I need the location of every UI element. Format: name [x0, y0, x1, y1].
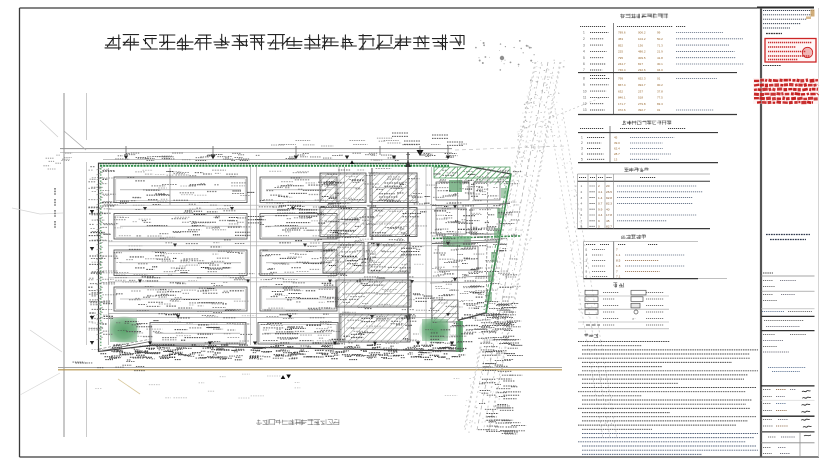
svg-text:00.2: 00.2	[657, 83, 663, 87]
svg-text:006.2: 006.2	[638, 31, 646, 35]
svg-text:71.3: 71.3	[657, 43, 663, 47]
svg-text:104.2: 104.2	[638, 37, 646, 41]
svg-text:867.4: 867.4	[618, 83, 626, 87]
svg-text:789.6: 789.6	[618, 31, 626, 35]
svg-text:8: 8	[583, 77, 585, 81]
svg-text:846.1: 846.1	[618, 96, 626, 100]
svg-text:4: 4	[586, 264, 588, 268]
svg-text:82.7: 82.7	[606, 225, 612, 229]
svg-text:4: 4	[581, 202, 583, 206]
svg-text:10: 10	[583, 89, 587, 93]
svg-text:×·: ×·	[632, 316, 636, 321]
svg-text:20: 20	[606, 184, 610, 188]
svg-text:795: 795	[618, 56, 623, 60]
svg-text:8.5: 8.5	[616, 259, 621, 263]
svg-text:652.3: 652.3	[638, 77, 646, 81]
svg-text:3: 3	[586, 259, 588, 263]
svg-text:28.7: 28.7	[614, 152, 620, 156]
svg-text:817: 817	[638, 62, 643, 66]
svg-text:3: 3	[581, 147, 583, 151]
svg-text:82.3: 82.3	[606, 202, 612, 206]
svg-text:094.7: 094.7	[638, 83, 646, 87]
svg-text:9.9: 9.9	[598, 207, 603, 211]
svg-text:13: 13	[583, 108, 587, 112]
svg-text:41.8: 41.8	[657, 56, 663, 60]
svg-text:6: 6	[586, 275, 588, 279]
svg-text:4.4: 4.4	[598, 213, 603, 217]
svg-text:072.6: 072.6	[618, 108, 626, 112]
svg-text:232.6: 232.6	[638, 68, 646, 72]
svg-text:45: 45	[606, 219, 610, 223]
svg-text:2: 2	[583, 37, 585, 41]
svg-text:39.0: 39.0	[614, 141, 620, 145]
svg-text:1: 1	[583, 31, 585, 35]
svg-text:04.0: 04.0	[657, 68, 663, 72]
svg-text:244.7: 244.7	[618, 62, 626, 66]
svg-text:2: 2	[581, 190, 583, 194]
svg-text:3: 3	[581, 196, 583, 200]
svg-text:632: 632	[618, 89, 623, 93]
svg-text:4: 4	[583, 50, 585, 54]
svg-text:6: 6	[583, 62, 585, 66]
svg-text:746.4: 746.4	[618, 68, 626, 72]
svg-text:50.2: 50.2	[657, 37, 663, 41]
svg-text:7: 7	[616, 248, 618, 252]
svg-text:486.2: 486.2	[638, 50, 646, 54]
svg-text:1.8: 1.8	[616, 264, 621, 268]
svg-text:1.4: 1.4	[598, 196, 603, 200]
svg-text:309.5: 309.5	[638, 56, 646, 60]
svg-text:5: 5	[586, 270, 588, 274]
svg-text:21.9: 21.9	[657, 50, 663, 54]
svg-text:45: 45	[614, 136, 618, 140]
svg-text:26.5: 26.5	[606, 190, 612, 194]
svg-text:77.5: 77.5	[657, 96, 663, 100]
svg-text:7.1: 7.1	[616, 275, 621, 279]
svg-text:5: 5	[583, 56, 585, 60]
svg-text:7: 7	[581, 219, 583, 223]
svg-text:1: 1	[586, 248, 588, 252]
svg-text:1: 1	[581, 136, 583, 140]
svg-text:225: 225	[618, 50, 623, 54]
svg-text:518: 518	[638, 96, 643, 100]
svg-text:2: 2	[581, 141, 583, 145]
svg-text:12: 12	[583, 102, 587, 106]
svg-text:4: 4	[581, 152, 583, 156]
svg-text:279.8: 279.8	[638, 102, 646, 106]
svg-text:30.1: 30.1	[657, 62, 663, 66]
svg-text:1: 1	[581, 184, 583, 188]
svg-text:136: 136	[638, 43, 643, 47]
svg-text:01: 01	[657, 108, 661, 112]
svg-text:6: 6	[581, 213, 583, 217]
svg-text:17.8: 17.8	[606, 213, 612, 217]
svg-text:8: 8	[581, 225, 583, 229]
svg-text:37.8: 37.8	[657, 89, 663, 93]
svg-text:11: 11	[583, 96, 587, 100]
svg-text:5: 5	[581, 158, 583, 162]
svg-text:7: 7	[583, 68, 585, 72]
svg-text:392.7: 392.7	[638, 108, 646, 112]
svg-text:99: 99	[657, 31, 661, 35]
svg-text:01: 01	[657, 77, 661, 81]
svg-text:171.7: 171.7	[618, 102, 626, 106]
svg-text:7: 7	[616, 270, 618, 274]
svg-text:9: 9	[583, 83, 585, 87]
svg-text:0.7: 0.7	[598, 202, 603, 206]
svg-text:4.1: 4.1	[598, 190, 603, 194]
svg-text:2: 2	[586, 253, 588, 257]
svg-text:237: 237	[638, 89, 643, 93]
svg-text:3: 3	[583, 43, 585, 47]
svg-text:62.4: 62.4	[614, 147, 620, 151]
svg-text:2: 2	[598, 184, 600, 188]
svg-text:13: 13	[614, 158, 618, 162]
svg-text:83.3: 83.3	[657, 102, 663, 106]
svg-text:92.8: 92.8	[606, 196, 612, 200]
svg-text:5: 5	[581, 207, 583, 211]
svg-text:1.1: 1.1	[616, 253, 621, 257]
svg-text:852: 852	[618, 43, 623, 47]
svg-text:9: 9	[598, 219, 600, 223]
svg-text:799: 799	[618, 77, 623, 81]
svg-text:453: 453	[618, 37, 623, 41]
svg-text:0: 0	[598, 225, 600, 229]
svg-text:40: 40	[606, 207, 610, 211]
